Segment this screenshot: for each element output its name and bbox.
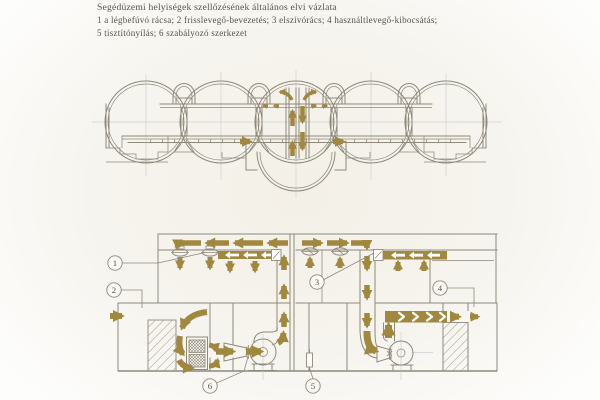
callout-3: 3: [310, 253, 374, 289]
svg-text:5: 5: [311, 381, 316, 391]
exhaust-wall-block: [443, 323, 468, 372]
collection-duct: [374, 250, 448, 261]
ventilation-diagram: 1 2 3 4 5: [0, 0, 600, 400]
svg-text:6: 6: [208, 381, 213, 391]
svg-text:3: 3: [315, 277, 320, 287]
figure-page: Segédüzemi helyiségek szellőzésének álta…: [0, 0, 600, 400]
svg-text:4: 4: [438, 283, 443, 293]
plan-view: [92, 70, 502, 198]
svg-text:2: 2: [112, 285, 116, 295]
exhaust-fan: [377, 323, 416, 371]
plan-centerlines: [92, 70, 502, 198]
intake-wall-block: [148, 320, 176, 371]
exhaust-grilles: [301, 248, 349, 255]
callout-2: 2: [107, 283, 142, 308]
section-view: 1 2 3 4 5: [107, 234, 497, 393]
svg-text:1: 1: [113, 258, 117, 268]
ceiling-supply-duct: [218, 250, 281, 261]
callout-1: 1: [108, 253, 205, 271]
callout-5: 5: [306, 368, 320, 393]
exhaust-discharge-duct: [385, 311, 447, 323]
cleaning-opening: [307, 349, 313, 371]
